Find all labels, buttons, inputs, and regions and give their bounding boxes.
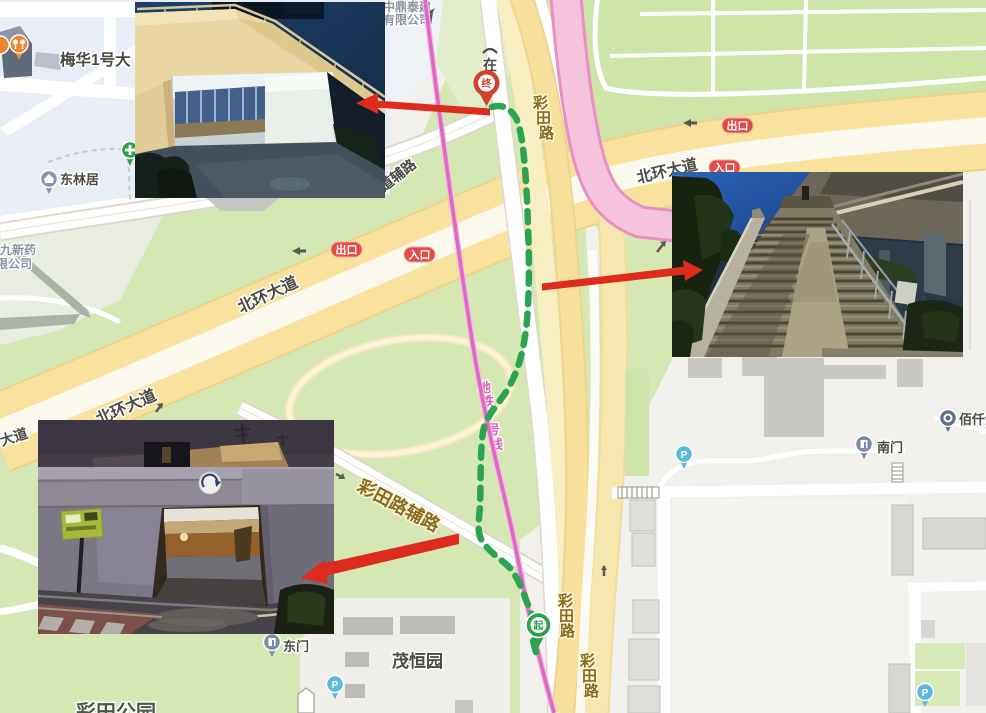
svg-text:九新药: 九新药 [0,242,36,257]
svg-text:出口: 出口 [336,243,358,257]
svg-text:佰仟金: 佰仟金 [959,412,986,427]
svg-text:起: 起 [533,619,545,632]
svg-text:东门: 东门 [283,639,309,654]
svg-text:P: P [681,450,688,461]
svg-text:限公司: 限公司 [0,256,32,271]
svg-text:路: 路 [560,622,576,640]
svg-text:P: P [332,680,339,691]
svg-text:P: P [922,688,929,699]
svg-text:东林居: 东林居 [60,172,99,187]
svg-text:梅华1号大: 梅华1号大 [60,50,131,69]
svg-text:路: 路 [539,124,555,142]
svg-text:路: 路 [584,682,600,700]
svg-text:终: 终 [482,77,493,90]
svg-text:茂恒园: 茂恒园 [392,651,443,671]
svg-text:入口: 入口 [409,249,431,262]
svg-text:彩田公园: 彩田公园 [75,701,156,713]
svg-text:出口: 出口 [727,119,749,133]
svg-text:南门: 南门 [877,440,903,455]
